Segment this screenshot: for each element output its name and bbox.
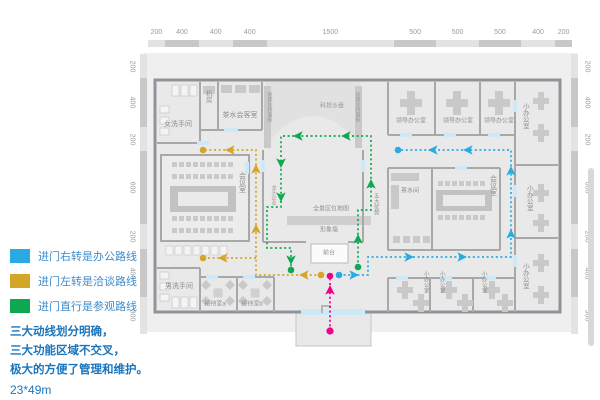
- ruler-top-2: 400: [199, 26, 233, 38]
- plan-dimensions: 23*49m: [10, 383, 146, 397]
- office-route-swatch: [10, 249, 30, 263]
- design-notes: 三大动线划分明确， 三大功能区域不交叉， 极大的方便了管理和维护。 23*49m: [10, 323, 146, 397]
- legend-item-tour: 进门直行是参观路线: [10, 298, 146, 314]
- tour-route-label: 进门直行是参观路线: [38, 298, 137, 314]
- ruler-top-3: 400: [233, 26, 267, 38]
- negotiation-route-label: 进门左转是洽谈路线: [38, 273, 137, 289]
- note-line-3: 极大的方便了管理和维护。: [10, 361, 146, 380]
- ruler-top-7: 500: [479, 26, 521, 38]
- legend-item-office: 进门右转是办公路线: [10, 248, 146, 264]
- note-line-2: 三大功能区域不交叉，: [10, 342, 146, 361]
- ruler-top-5: 500: [394, 26, 436, 38]
- ruler-top-1: 400: [165, 26, 199, 38]
- ruler-top-bar: [148, 40, 572, 47]
- note-line-1: 三大动线划分明确，: [10, 323, 146, 342]
- ruler-top-numbers: 200 400 400 400 1500 500 500 500 400 200: [148, 26, 572, 38]
- ruler-top-9: 200: [555, 26, 572, 38]
- ruler-top-6: 500: [436, 26, 478, 38]
- floor-plan-page: 女洗手间 茶水会客室 科技沙盘 全景区位地图 形象墙 前台 男洗手间 接待室a …: [0, 0, 600, 400]
- ruler-top-0: 200: [148, 26, 165, 38]
- negotiation-route-swatch: [10, 274, 30, 288]
- route-legend: 进门右转是办公路线 进门左转是洽谈路线 进门直行是参观路线 三大动线划分明确， …: [10, 248, 146, 397]
- tour-route-swatch: [10, 299, 30, 313]
- ruler-right-bar: [571, 54, 578, 334]
- entrance-vestibule: [296, 312, 371, 346]
- legend-item-negotiation: 进门左转是洽谈路线: [10, 273, 146, 289]
- office-route-label: 进门右转是办公路线: [38, 248, 137, 264]
- ruler-top-4: 1500: [267, 26, 394, 38]
- ruler-top-8: 400: [521, 26, 555, 38]
- vertical-scrollbar[interactable]: [588, 168, 594, 346]
